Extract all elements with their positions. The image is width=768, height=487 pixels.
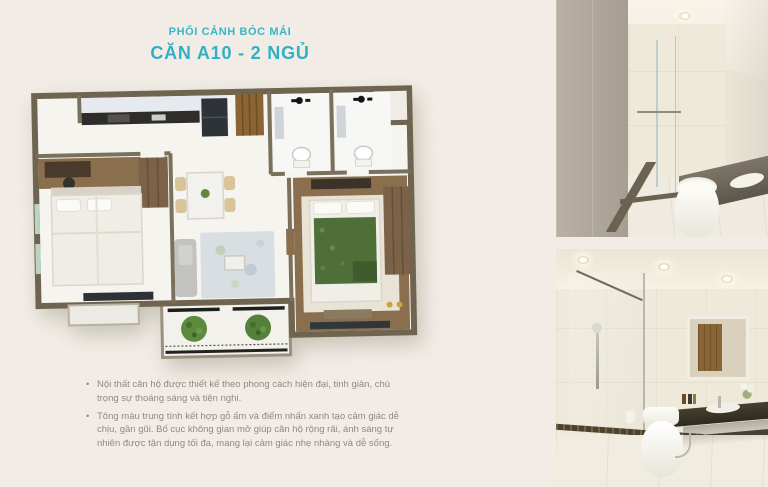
bathroom-photo-top xyxy=(556,0,768,237)
dining-chair xyxy=(224,198,235,212)
header: PHỐI CẢNH BÓC MÁI CĂN A10 - 2 NGỦ xyxy=(30,26,430,64)
back-wall xyxy=(628,24,726,180)
bedroom-1-desk xyxy=(45,161,91,178)
shower-handset-icon xyxy=(592,323,602,333)
bathroom-2 xyxy=(334,92,392,170)
page-title: CĂN A10 - 2 NGỦ xyxy=(30,43,430,64)
living-room xyxy=(174,231,275,299)
shower-glass-panel xyxy=(656,40,658,187)
ac-ledge xyxy=(69,304,139,325)
balcony-door-track-right xyxy=(233,308,285,309)
kitchen-stove xyxy=(108,114,130,122)
bathroom-1-toilet xyxy=(292,147,310,161)
balcony-door-track-left xyxy=(168,309,220,310)
dining-chair xyxy=(175,177,186,191)
coffee-table xyxy=(225,256,245,270)
dining-chair xyxy=(224,176,235,190)
bedroom-1-wardrobe xyxy=(138,157,168,208)
kitchen-counter xyxy=(82,111,200,125)
bathroom-2-vanity xyxy=(336,106,346,138)
shower-side-wall xyxy=(556,0,628,237)
flower-vase xyxy=(735,380,757,406)
bedroom-1-console xyxy=(83,292,153,301)
bedroom-2-folded-blanket xyxy=(353,261,377,281)
bathroom-photo-bottom xyxy=(556,249,768,487)
bathroom-1 xyxy=(272,93,330,171)
brochure-page: PHỐI CẢNH BÓC MÁI CĂN A10 - 2 NGỦ xyxy=(0,0,768,487)
entry-door xyxy=(235,93,264,136)
bedroom-2-wardrobe xyxy=(383,186,411,275)
bathroom-2-toilet xyxy=(354,146,372,160)
description-list: Nội thất căn hộ được thiết kế theo phong… xyxy=(86,378,408,455)
bedroom-2-door-gap xyxy=(286,229,295,255)
bedroom-2-console xyxy=(311,178,371,189)
kitchen-sink xyxy=(152,114,166,120)
downlight-icon xyxy=(679,12,691,20)
towel-bar xyxy=(637,111,682,113)
bathroom-1-vanity xyxy=(274,107,284,139)
page-subtitle: PHỐI CẢNH BÓC MÁI xyxy=(30,26,430,38)
bedroom-1-window-2 xyxy=(35,244,41,274)
description-bullet-2: Tông màu trung tính kết hợp gỗ ấm và điể… xyxy=(86,410,408,451)
dining-chair xyxy=(175,199,186,213)
mirror xyxy=(687,316,748,380)
bedroom-1-door-gap xyxy=(140,149,164,158)
shower-glass-edge xyxy=(675,36,676,192)
toilet-paper-holder xyxy=(626,411,635,423)
floor-plan-3d xyxy=(22,80,442,380)
toiletry-bottles xyxy=(682,394,696,404)
toilet-seat xyxy=(677,177,717,197)
mirror-door-reflection xyxy=(698,324,721,371)
bedroom-2-bench xyxy=(324,309,372,319)
balcony xyxy=(162,301,291,358)
description-bullet-1: Nội thất căn hộ được thiết kế theo phong… xyxy=(86,378,408,406)
faucet-icon xyxy=(718,396,721,408)
floor-plan-svg xyxy=(22,80,442,380)
shower-column xyxy=(596,328,599,390)
bedroom-1-window xyxy=(34,204,40,234)
